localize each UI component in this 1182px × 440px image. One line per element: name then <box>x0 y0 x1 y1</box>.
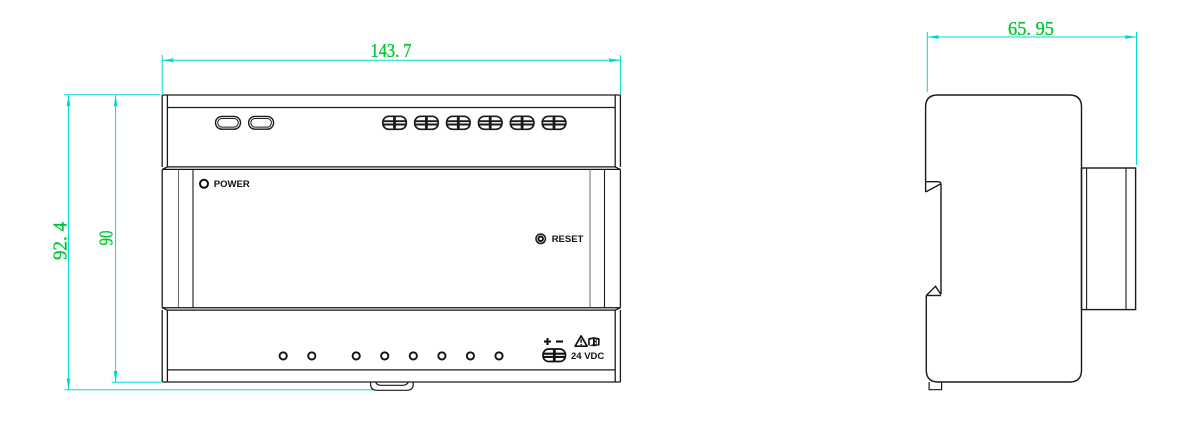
svg-text:POWER: POWER <box>214 179 250 190</box>
svg-text:90: 90 <box>96 231 117 246</box>
svg-text:92. 4: 92. 4 <box>50 222 71 260</box>
svg-text:143. 7: 143. 7 <box>371 41 412 62</box>
svg-text:65. 95: 65. 95 <box>1008 19 1054 40</box>
svg-text:24 VDC: 24 VDC <box>571 351 604 362</box>
svg-text:RESET: RESET <box>552 234 584 245</box>
